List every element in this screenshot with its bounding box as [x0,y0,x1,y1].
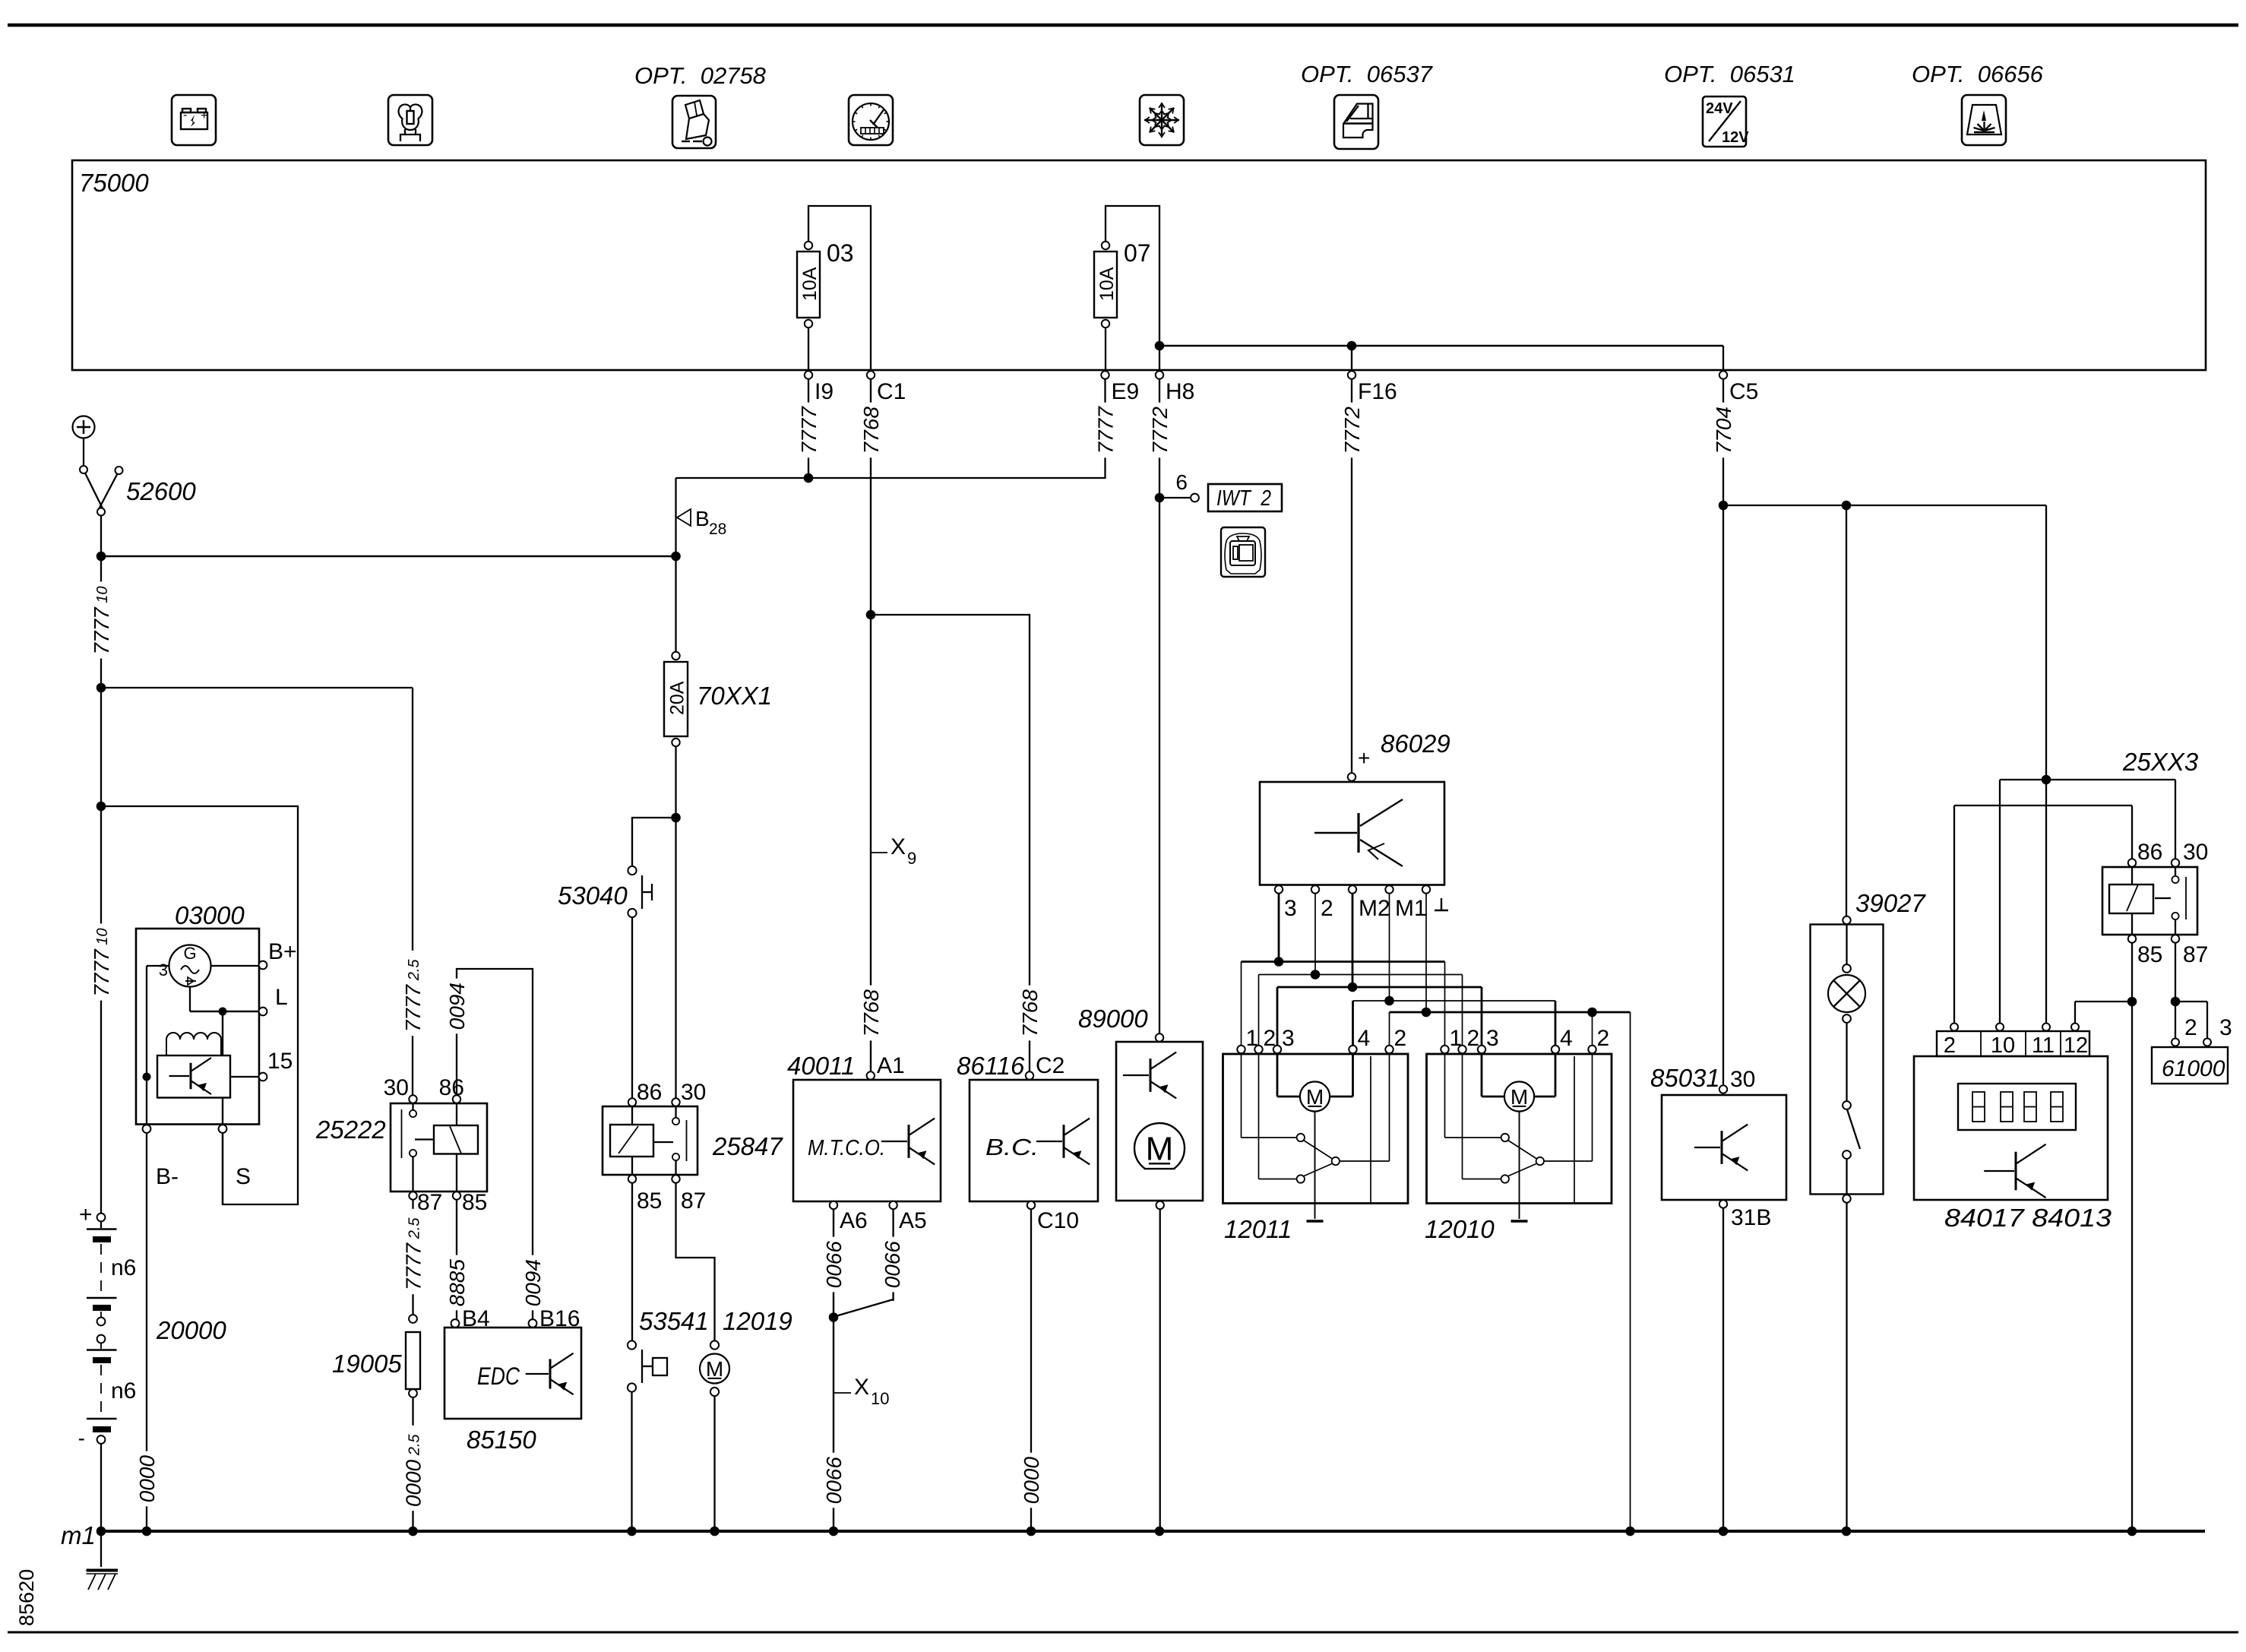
svg-text:2: 2 [2184,1015,2197,1040]
svg-text:6: 6 [1175,470,1188,494]
svg-text:61000: 61000 [2162,1056,2225,1081]
svg-text:86116: 86116 [957,1052,1025,1080]
svg-text:C1: C1 [877,379,906,404]
svg-text:2: 2 [1467,1026,1480,1051]
svg-text:30: 30 [384,1075,409,1100]
svg-text:89000: 89000 [1078,1005,1148,1033]
svg-text:75000: 75000 [79,169,149,197]
svg-text:OPT. 06537: OPT. 06537 [1301,61,1434,87]
svg-text:20A: 20A [667,681,688,715]
svg-text:-: - [78,1426,85,1450]
svg-text:n6: n6 [111,1255,136,1280]
svg-text:X: X [890,834,906,859]
svg-text:C2: C2 [1036,1053,1064,1078]
svg-text:7772: 7772 [1148,407,1172,454]
svg-text:M1: M1 [1395,896,1427,921]
svg-text:L: L [275,985,288,1010]
svg-text:25847: 25847 [712,1132,783,1160]
svg-text:87: 87 [417,1190,442,1215]
svg-text:84017 84013: 84017 84013 [1944,1204,2112,1232]
svg-text:C5: C5 [1729,379,1758,404]
svg-text:03000: 03000 [175,901,245,929]
svg-text:70XX1: 70XX1 [697,682,772,710]
svg-text:OPT. 02758: OPT. 02758 [634,62,767,89]
svg-text:03: 03 [827,239,854,267]
svg-text:+: + [79,1202,93,1227]
svg-text:3: 3 [1284,896,1297,921]
svg-text:3: 3 [2219,1015,2232,1040]
svg-text:24V: 24V [1706,100,1733,117]
svg-text:40011: 40011 [787,1052,855,1080]
svg-text:11: 11 [2032,1033,2055,1058]
svg-text:4: 4 [1560,1026,1573,1051]
svg-text:86: 86 [439,1075,464,1100]
svg-text:28: 28 [709,521,726,538]
svg-text:7772: 7772 [1340,407,1364,454]
svg-text:31B: 31B [1731,1205,1771,1230]
svg-text:53040: 53040 [558,881,628,910]
svg-text:85: 85 [462,1190,487,1215]
svg-text:07: 07 [1124,239,1151,267]
svg-text:7704: 7704 [1712,407,1735,454]
svg-text:M2: M2 [1359,896,1390,921]
svg-text:0066: 0066 [881,1241,904,1289]
svg-text:B+: B+ [268,939,297,964]
svg-text:53541: 53541 [639,1307,709,1335]
svg-text:19005: 19005 [332,1350,402,1378]
svg-text:2: 2 [1944,1033,1956,1058]
svg-text:2: 2 [1264,1026,1276,1051]
svg-text:0066: 0066 [822,1241,846,1289]
svg-text:7777: 7777 [1094,406,1118,454]
svg-text:OPT. 06531: OPT. 06531 [1664,61,1795,87]
svg-text:25222: 25222 [315,1116,386,1144]
svg-text:2: 2 [1321,896,1333,921]
svg-text:X: X [854,1375,869,1400]
svg-text:85031: 85031 [1650,1064,1720,1092]
svg-text:12019: 12019 [723,1307,792,1335]
svg-text:0094: 0094 [445,983,469,1030]
svg-text:n6: n6 [111,1378,136,1404]
svg-text:0000: 0000 [135,1455,159,1503]
svg-text:85150: 85150 [467,1426,536,1454]
svg-text:G: G [183,944,196,963]
svg-text:25XX3: 25XX3 [2122,748,2199,776]
svg-text:20000: 20000 [156,1316,226,1344]
svg-text:7768: 7768 [1018,989,1042,1037]
svg-text:39027: 39027 [1855,889,1926,917]
svg-text:+: + [201,109,207,122]
svg-text:0000: 0000 [1020,1457,1043,1505]
svg-text:M.T.C.O.: M.T.C.O. [808,1136,885,1160]
svg-text:7768: 7768 [859,989,883,1037]
svg-text:12011: 12011 [1224,1215,1292,1243]
svg-text:A6: A6 [840,1208,868,1233]
svg-text:0094: 0094 [521,1259,545,1306]
svg-text:4: 4 [1358,1026,1371,1051]
svg-text:86029: 86029 [1381,729,1450,758]
svg-text:F16: F16 [1358,379,1397,404]
svg-text:85620: 85620 [15,1569,38,1626]
svg-text:+: + [1358,746,1370,770]
svg-text:IWT 2: IWT 2 [1216,486,1271,511]
svg-text:B-: B- [156,1164,179,1189]
svg-text:12: 12 [2064,1033,2088,1058]
svg-text:B: B [695,507,710,530]
svg-text:15: 15 [267,1049,293,1074]
svg-text:52600: 52600 [126,477,196,505]
svg-text:2: 2 [1394,1026,1407,1051]
svg-text:M: M [706,1357,723,1381]
svg-text:10: 10 [1991,1033,2015,1058]
svg-text:8885: 8885 [445,1259,469,1307]
svg-text:0066: 0066 [822,1457,846,1505]
svg-text:30: 30 [2183,840,2208,865]
svg-text:87: 87 [2183,942,2208,967]
svg-text:30: 30 [681,1080,706,1105]
svg-text:m1: m1 [61,1521,96,1549]
svg-text:I9: I9 [815,379,834,404]
svg-text:9: 9 [907,849,916,868]
svg-text:B.C.: B.C. [985,1134,1039,1160]
svg-text:E9: E9 [1112,379,1140,404]
svg-text:M: M [1146,1130,1174,1167]
svg-text:7768: 7768 [859,407,883,454]
svg-text:3: 3 [1486,1026,1499,1051]
svg-text:1: 1 [1450,1026,1463,1051]
svg-text:85: 85 [637,1188,662,1214]
svg-text:10A: 10A [799,267,821,301]
svg-text:H8: H8 [1166,379,1194,404]
svg-text:C10: C10 [1037,1208,1079,1233]
svg-text:86: 86 [637,1080,662,1105]
svg-text:85: 85 [2137,942,2162,967]
svg-text:10A: 10A [1096,267,1118,301]
svg-text:B16: B16 [539,1306,580,1331]
svg-text:2: 2 [1597,1026,1610,1051]
svg-text:A5: A5 [899,1208,927,1233]
svg-text:A1: A1 [877,1053,905,1078]
svg-text:OPT. 06656: OPT. 06656 [1912,61,2044,87]
svg-text:M: M [1511,1085,1528,1109]
svg-text:10: 10 [871,1389,889,1408]
svg-text:7777: 7777 [797,406,821,454]
svg-text:1: 1 [1246,1026,1259,1051]
svg-text:12010: 12010 [1425,1215,1495,1243]
svg-text:S: S [236,1164,251,1189]
svg-text:B4: B4 [462,1306,490,1331]
svg-text:30: 30 [1730,1067,1755,1092]
svg-text:-: - [183,109,187,122]
svg-text:M: M [1306,1085,1324,1109]
svg-text:3: 3 [1282,1026,1295,1051]
svg-text:87: 87 [681,1188,706,1214]
svg-text:3: 3 [159,961,168,979]
svg-text:EDC: EDC [477,1362,520,1390]
svg-text:12V: 12V [1722,129,1749,146]
svg-text:86: 86 [2137,840,2162,865]
